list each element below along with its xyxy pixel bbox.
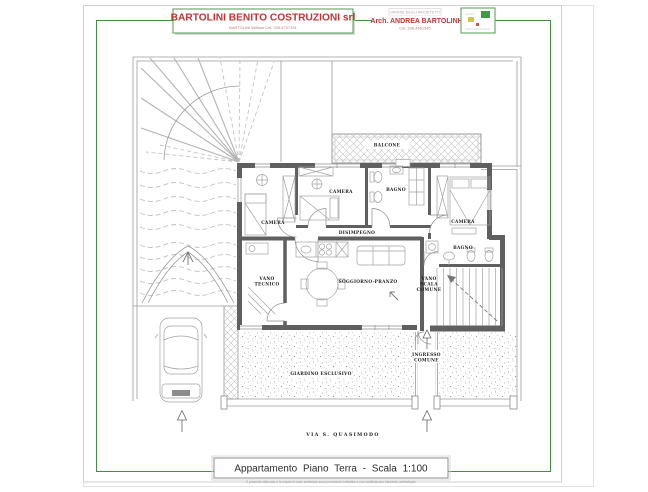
- kitchen-counter: [296, 242, 348, 257]
- wardrobe-left: [283, 176, 295, 222]
- stairs: [390, 268, 502, 326]
- terrain-lines: [140, 169, 236, 296]
- company-contact: BARTOLINI William Cel. 335.6757331: [229, 25, 297, 30]
- sofa: [357, 246, 405, 265]
- label-balcone: BALCONE: [374, 144, 401, 149]
- footer-title-block: Appartamento Piano Terra - Scala 1:100 I…: [212, 456, 450, 484]
- floor-plan-drawing: BARTOLINI BENITO COSTRUZIONI srl BARTOLI…: [0, 0, 648, 492]
- label-ingresso-1: INGRESSO: [412, 353, 441, 358]
- bathroom-top-fixtures: [370, 166, 424, 205]
- architect-order: ORDINE DEGLI ARCHITETTI: [390, 11, 440, 15]
- building: [237, 160, 505, 345]
- label-camera-2: CAMERA: [329, 190, 353, 195]
- label-giardino: GIARDINO ESCLUSIVO: [290, 372, 351, 377]
- company-logo: [461, 8, 495, 33]
- green-border: [97, 21, 551, 472]
- footer-title: Appartamento Piano Terra - Scala 1:100: [234, 464, 428, 475]
- car: [155, 318, 207, 402]
- label-vano-scala-1: VANO: [420, 277, 436, 282]
- company-name: BARTOLINI BENITO COSTRUZIONI srl: [171, 13, 356, 24]
- garden-right: [439, 332, 516, 397]
- bed-single-center: [300, 196, 339, 220]
- windows: [238, 160, 491, 331]
- footer-note: Il presente elaborato e le misure in ess…: [246, 480, 415, 484]
- street-arrows: [178, 411, 432, 433]
- stairs-direction-arrow: [447, 275, 456, 283]
- label-vano-scala-2: SCALA: [420, 283, 438, 288]
- label-camera-1: CAMERA: [261, 221, 285, 226]
- title-block: BARTOLINI BENITO COSTRUZIONI srl BARTOLI…: [171, 8, 495, 35]
- architect-contact: Cel. 338.4461545: [399, 26, 431, 31]
- interior-walls: [242, 163, 505, 325]
- walkway: [415, 330, 438, 397]
- balcony: [332, 134, 481, 163]
- bathroom-lower-fixtures: [426, 241, 493, 265]
- entrance-arrow: [423, 330, 431, 338]
- boundary-wall-hatched: [224, 306, 238, 399]
- bench: [452, 228, 476, 234]
- bed-single-left: [245, 194, 266, 235]
- drawing-sheet: BARTOLINI BENITO COSTRUZIONI srl BARTOLI…: [0, 0, 648, 492]
- label-vano-tecnico-1: VANO: [258, 277, 274, 282]
- bed-double: [450, 177, 490, 225]
- label-camera-3: CAMERA: [451, 220, 475, 225]
- label-vano-tecnico-2: TECNICO: [254, 283, 279, 288]
- label-soggiorno: SOGGIORNO-PRANZO: [339, 280, 398, 285]
- label-disimpegno: DISIMPEGNO: [339, 231, 375, 236]
- label-vano-scala-3: COMUNE: [417, 288, 442, 293]
- label-bagno-1: BAGNO: [386, 188, 406, 193]
- label-ingresso-2: COMUNE: [414, 359, 439, 364]
- street-wall: [221, 396, 517, 409]
- label-via: VIA S. QUASIMODO: [305, 432, 380, 438]
- wardrobe-right: [437, 176, 448, 218]
- architect-name: Arch. ANDREA BARTOLINI: [370, 18, 459, 25]
- garden-exclusive: [240, 332, 414, 397]
- label-bagno-2: BAGNO: [453, 246, 473, 251]
- ramp-fan: [141, 58, 274, 162]
